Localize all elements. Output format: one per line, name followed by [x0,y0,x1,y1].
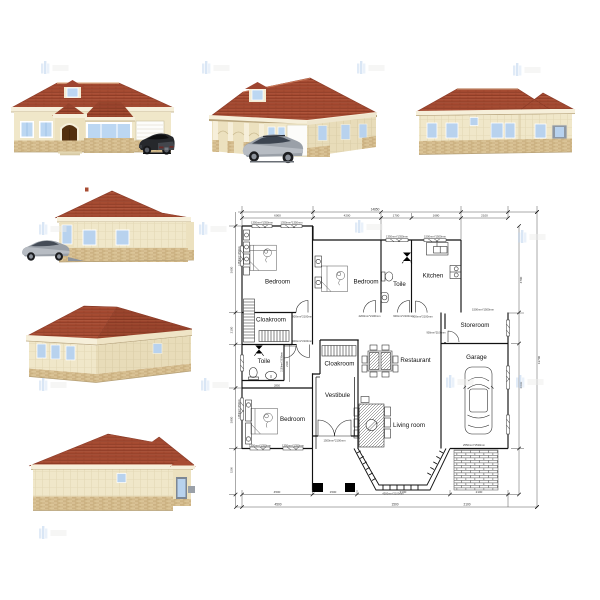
svg-text:Cloakroom: Cloakroom [256,317,286,324]
svg-text:1500mm*1500mm: 1500mm*1500mm [472,308,495,312]
svg-text:Bedroom: Bedroom [280,416,305,423]
svg-text:Toile: Toile [393,281,406,288]
svg-text:4500: 4500 [274,490,281,494]
svg-text:Garage: Garage [466,354,487,361]
svg-text:900mm*2100mm: 900mm*2100mm [292,314,313,318]
svg-text:Cloakroom: Cloakroom [325,361,355,368]
svg-text:4200mm*2100mm: 4200mm*2100mm [359,314,382,318]
svg-text:3600: 3600 [230,266,234,273]
svg-text:Bedroom: Bedroom [353,279,378,286]
svg-text:1500: 1500 [330,490,337,494]
svg-text:Living room: Living room [393,422,425,429]
svg-text:1350mm*1350mm: 1350mm*1350mm [282,443,305,447]
svg-text:Restaurant: Restaurant [400,357,431,364]
svg-text:Bedroom: Bedroom [265,279,290,286]
svg-text:1500: 1500 [391,503,398,507]
svg-text:1500mm*2100mm: 1500mm*2100mm [324,439,347,443]
svg-text:4200: 4200 [344,214,351,218]
svg-text:2100: 2100 [476,490,483,494]
svg-text:1350mm*1350mm: 1350mm*1350mm [238,399,241,419]
svg-text:2100: 2100 [230,326,234,333]
svg-text:2100: 2100 [463,503,470,507]
svg-text:4700: 4700 [519,276,523,283]
svg-text:4500: 4500 [274,503,281,507]
svg-text:Vestibule: Vestibule [325,392,351,399]
svg-text:4500mm*2100mm: 4500mm*2100mm [382,491,403,495]
svg-text:1350mm*1350mm: 1350mm*1350mm [281,221,304,225]
svg-text:2550mm*1530mm: 2550mm*1530mm [463,443,486,447]
svg-text:1350mm*1350mm: 1350mm*1350mm [386,235,409,239]
svg-text:1350mm*1350mm: 1350mm*1350mm [238,246,241,266]
svg-text:Storeroom: Storeroom [461,322,490,329]
svg-text:1680: 1680 [433,214,440,218]
svg-text:1350mm*1350mm: 1350mm*1350mm [251,221,274,225]
svg-text:13700: 13700 [537,355,541,364]
svg-text:14850: 14850 [371,207,380,211]
svg-text:2130: 2130 [285,361,289,367]
svg-text:2100: 2100 [481,214,488,218]
svg-text:1700: 1700 [393,214,400,218]
svg-text:Kitchen: Kitchen [423,273,444,280]
svg-text:2150mm*2300mm: 2150mm*2300mm [281,352,284,372]
svg-text:6000: 6000 [274,214,281,218]
svg-text:900mm*2100mm: 900mm*2100mm [412,314,433,318]
svg-text:1500mm*1500mm: 1500mm*1500mm [424,235,447,239]
svg-text:3900: 3900 [230,416,234,423]
svg-text:Toile: Toile [258,358,271,365]
svg-text:900mm*2100mm: 900mm*2100mm [292,339,313,343]
svg-text:1350mm*1350mm: 1350mm*1350mm [249,443,272,447]
svg-text:900mm*2100mm: 900mm*2100mm [426,332,445,335]
svg-text:1500: 1500 [230,467,234,473]
svg-text:2850: 2850 [274,383,280,387]
